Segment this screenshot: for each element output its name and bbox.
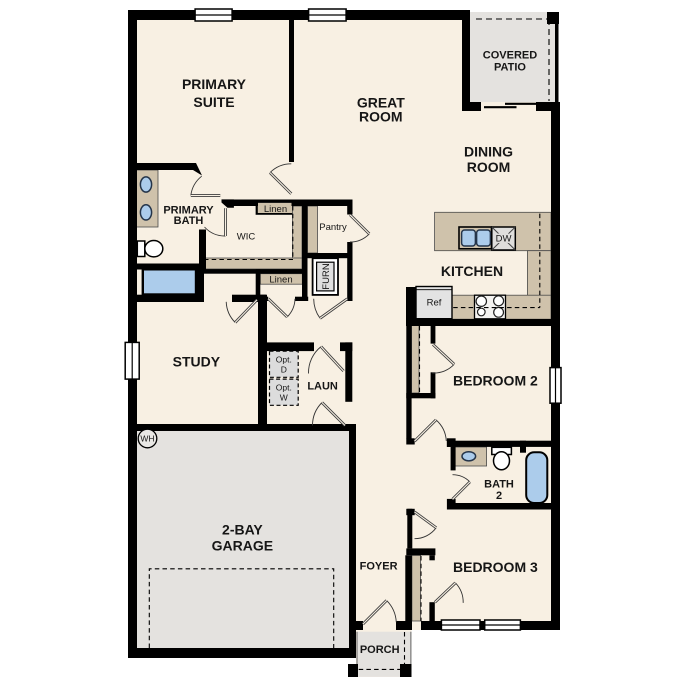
svg-text:DW: DW bbox=[496, 234, 512, 245]
svg-text:GARAGE: GARAGE bbox=[212, 537, 273, 553]
svg-text:D: D bbox=[281, 365, 287, 375]
svg-text:PATIO: PATIO bbox=[494, 61, 526, 73]
svg-text:LAUN: LAUN bbox=[307, 381, 338, 393]
svg-text:WIC: WIC bbox=[237, 232, 256, 243]
svg-text:BATH: BATH bbox=[174, 215, 204, 227]
svg-text:Pantry: Pantry bbox=[319, 222, 347, 233]
svg-text:ROOM: ROOM bbox=[359, 108, 403, 124]
svg-text:COVERED: COVERED bbox=[483, 50, 537, 62]
svg-text:Opt.: Opt. bbox=[276, 355, 292, 365]
svg-text:PORCH: PORCH bbox=[360, 644, 400, 656]
svg-text:FURN: FURN bbox=[321, 263, 332, 290]
svg-text:Opt.: Opt. bbox=[276, 383, 292, 393]
svg-text:FOYER: FOYER bbox=[360, 560, 398, 572]
svg-text:DINING: DINING bbox=[464, 143, 513, 159]
svg-text:Ref: Ref bbox=[427, 298, 442, 309]
svg-text:WH: WH bbox=[140, 433, 154, 443]
svg-text:PRIMARY: PRIMARY bbox=[182, 76, 247, 92]
svg-text:Linen: Linen bbox=[269, 274, 292, 285]
svg-text:BATH: BATH bbox=[484, 479, 514, 491]
svg-text:2: 2 bbox=[496, 490, 502, 502]
svg-text:SUITE: SUITE bbox=[193, 94, 234, 110]
svg-text:W: W bbox=[280, 393, 288, 403]
svg-text:STUDY: STUDY bbox=[173, 354, 221, 370]
svg-text:ROOM: ROOM bbox=[467, 159, 511, 175]
svg-text:BEDROOM 2: BEDROOM 2 bbox=[453, 373, 538, 389]
svg-text:Linen: Linen bbox=[264, 204, 287, 215]
svg-text:2-BAY: 2-BAY bbox=[222, 521, 263, 537]
svg-text:BEDROOM 3: BEDROOM 3 bbox=[453, 559, 538, 575]
svg-text:KITCHEN: KITCHEN bbox=[441, 263, 503, 279]
